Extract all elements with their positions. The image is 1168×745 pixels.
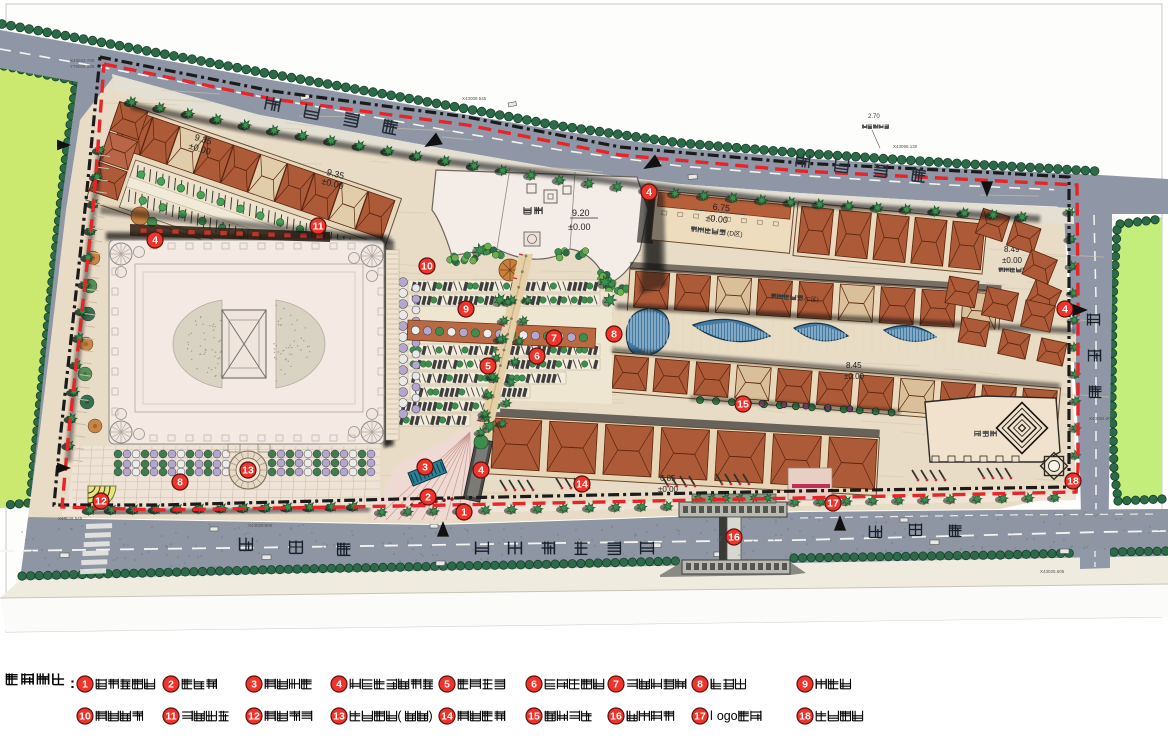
svg-text:X43029.500: X43029.500: [248, 523, 273, 528]
svg-text:8: 8: [697, 679, 703, 691]
svg-text:X43043.700: X43043.700: [70, 58, 95, 63]
svg-text:11: 11: [165, 711, 176, 723]
svg-text:9: 9: [463, 304, 469, 316]
svg-text:4: 4: [478, 465, 484, 477]
svg-text:12: 12: [95, 496, 107, 508]
svg-text:4: 4: [646, 187, 652, 199]
svg-text:2: 2: [425, 492, 431, 504]
svg-text:8: 8: [177, 477, 183, 489]
svg-text:4: 4: [1062, 304, 1068, 316]
svg-text:3: 3: [251, 679, 257, 691]
svg-text:16: 16: [728, 532, 740, 544]
svg-text:): ): [429, 709, 433, 723]
svg-text:7: 7: [613, 679, 619, 691]
svg-text:l: l: [710, 709, 713, 723]
svg-text:±0.00: ±0.00: [844, 372, 865, 381]
svg-text:13: 13: [242, 465, 254, 477]
svg-text:12: 12: [248, 711, 260, 723]
svg-text:11: 11: [312, 221, 323, 233]
svg-text:X43008.545: X43008.545: [462, 96, 487, 101]
svg-text:14: 14: [576, 479, 588, 491]
svg-text:10: 10: [421, 261, 433, 273]
svg-text:4: 4: [336, 679, 342, 691]
svg-text:(D区): (D区): [727, 229, 743, 238]
svg-text:(C区): (C区): [804, 296, 819, 304]
svg-text:2.70: 2.70: [868, 114, 880, 120]
svg-text:3: 3: [422, 462, 428, 474]
svg-text:9: 9: [802, 679, 808, 691]
svg-text:±0.00: ±0.00: [568, 222, 590, 232]
svg-text::: :: [70, 675, 75, 692]
svg-text:8: 8: [611, 329, 617, 341]
svg-text:1: 1: [461, 507, 467, 519]
svg-text:18: 18: [799, 711, 811, 723]
svg-text:18: 18: [1067, 476, 1079, 488]
svg-text:16: 16: [610, 711, 622, 723]
svg-text:X43096.130: X43096.130: [893, 144, 918, 149]
svg-text:15: 15: [737, 399, 749, 411]
svg-text:6: 6: [534, 351, 540, 363]
svg-text:5: 5: [485, 361, 491, 373]
svg-text:X43084.000: X43084.000: [1089, 416, 1114, 421]
svg-text:7: 7: [551, 333, 557, 345]
svg-text:1: 1: [82, 679, 88, 691]
svg-text:17: 17: [694, 711, 706, 723]
svg-text:±0.00: ±0.00: [1002, 256, 1023, 265]
svg-text:o: o: [731, 709, 738, 723]
svg-text:10: 10: [79, 711, 91, 723]
svg-text:4: 4: [152, 235, 158, 247]
svg-text:X43025.605: X43025.605: [1040, 569, 1065, 574]
svg-text:5: 5: [444, 679, 450, 691]
svg-text:9.20: 9.20: [572, 208, 590, 218]
svg-text:6: 6: [531, 679, 537, 691]
svg-text:15: 15: [528, 711, 540, 723]
svg-text:2: 2: [168, 679, 174, 691]
svg-text:14: 14: [441, 711, 453, 723]
svg-text:13: 13: [333, 711, 345, 723]
svg-text:X43028.545: X43028.545: [58, 516, 83, 521]
svg-text:Y79005.200: Y79005.200: [70, 64, 95, 69]
svg-text:17: 17: [827, 498, 839, 510]
